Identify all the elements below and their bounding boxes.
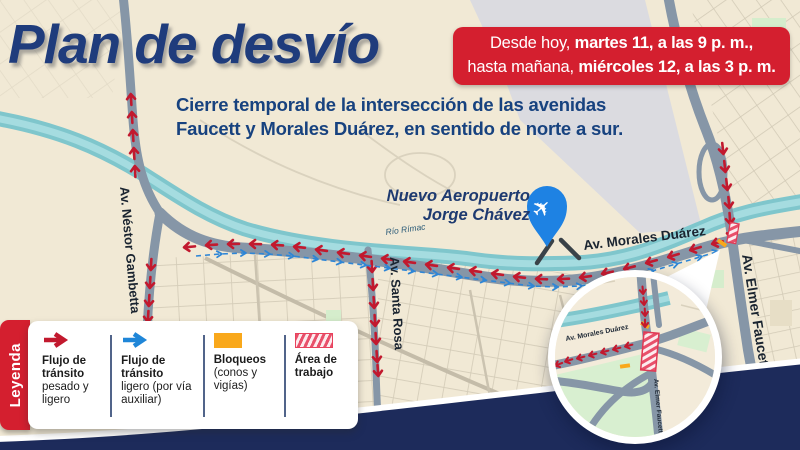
inset-canvas: Av. Morales Duárez Av. Elmer Faucett [555,277,715,437]
legend-panel: Flujo de tránsitopesado y ligero Flujo d… [28,321,358,429]
legend-tab: Leyenda [0,320,30,430]
schedule-line1: Desde hoy, martes 11, a las 9 p. m., [453,32,790,56]
airport-label-line2: Jorge Chávez [423,206,531,224]
schedule-line2: hasta mañana, miércoles 12, a las 3 p. m… [453,56,790,80]
infographic-root: ✈ Río Rímac Av. Morales Duárez Av. Nésto… [0,0,800,450]
subtitle-line1: Cierre temporal de la intersección de la… [176,94,606,115]
airport-label-line1: Nuevo Aeropuerto [387,187,530,205]
page-title: Plan de desvío [8,12,379,76]
legend-item-blockades: Bloqueos(conos y vigías) [214,331,275,421]
subtitle: Cierre temporal de la intersección de la… [176,93,686,142]
legend-divider [110,335,112,417]
inset-work-area [641,332,659,371]
red-flow-arrow-icon [42,331,72,349]
legend-divider [284,335,286,417]
blockade-swatch-icon [214,333,242,348]
inset-map: Av. Morales Duárez Av. Elmer Faucett [548,270,722,444]
legend-tab-label: Leyenda [7,343,24,407]
schedule-badge: Desde hoy, martes 11, a las 9 p. m., has… [453,27,790,85]
legend-item-heavy-flow: Flujo de tránsitopesado y ligero [42,331,101,421]
legend-divider [203,335,205,417]
blue-flow-arrow-icon [121,331,151,349]
subtitle-line2: Faucett y Morales Duárez, en sentido de … [176,118,623,139]
work-area-swatch-icon [295,333,333,348]
legend-item-work-area: Área de trabajo [295,331,354,421]
legend-item-light-flow: Flujo de tránsitoligero (por vía auxilia… [121,331,194,421]
